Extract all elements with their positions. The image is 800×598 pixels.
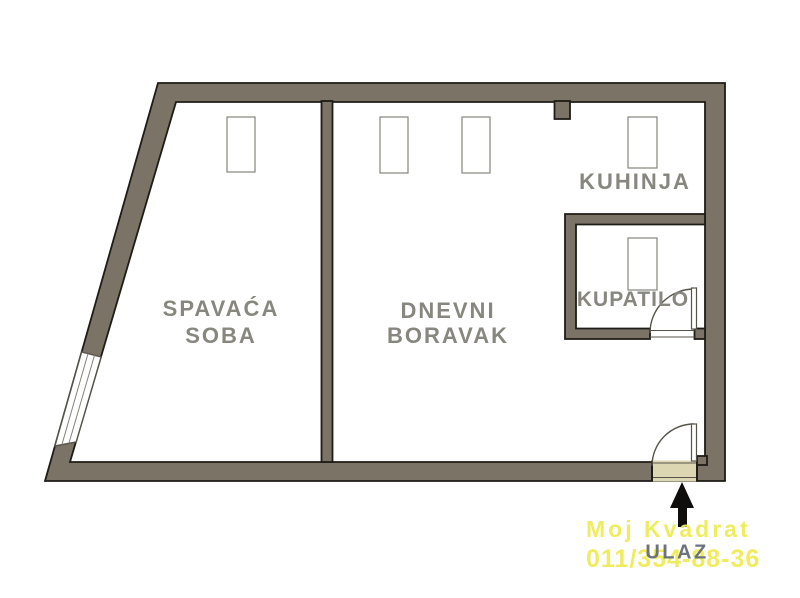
watermark-line1: Moj Kvadrat bbox=[586, 516, 751, 543]
entrance-label: ULAZ bbox=[645, 542, 708, 565]
room-label-kitchen: KUHINJA bbox=[579, 169, 691, 195]
entrance-opening bbox=[652, 461, 697, 482]
room-label-bathroom: KUPATILO bbox=[577, 288, 689, 312]
floorplan: Moj Kvadrat 011/354-88-36 SPAVAĆA SOBA D… bbox=[0, 0, 800, 598]
radiator-living-1 bbox=[380, 117, 408, 173]
room-label-bedroom-line1: SPAVAĆA bbox=[163, 296, 280, 322]
radiator-bedroom bbox=[227, 117, 255, 172]
room-label-living-line2: BORAVAK bbox=[387, 323, 509, 349]
wall-entrance-stub bbox=[697, 456, 707, 465]
wall-bathroom-door-stub bbox=[695, 329, 706, 340]
room-label-bedroom-line2: SOBA bbox=[185, 323, 257, 349]
radiator-living-2 bbox=[462, 117, 490, 173]
wall-bedroom-living-divider bbox=[322, 101, 333, 462]
window-symbol bbox=[55, 352, 101, 446]
entrance-door-arc bbox=[652, 424, 694, 466]
radiator-bathroom bbox=[628, 238, 657, 290]
entrance-door-leaf bbox=[692, 424, 697, 461]
wall-kitchen-stub bbox=[555, 101, 571, 119]
room-label-living-line1: DNEVNI bbox=[400, 298, 495, 324]
bathroom-door-leaf bbox=[692, 288, 697, 329]
radiator-kitchen bbox=[628, 117, 657, 168]
